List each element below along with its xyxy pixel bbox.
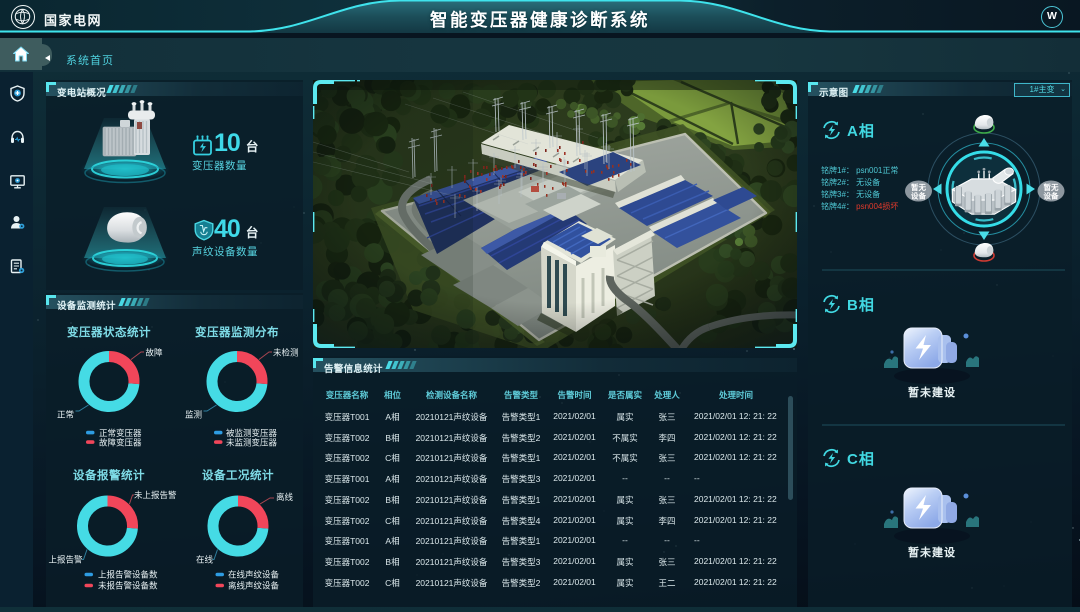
svg-text:B相: B相 [847,296,875,314]
svg-text:离线: 离线 [276,492,294,502]
svg-text:铭牌2#： 无设备: 铭牌2#： 无设备 [821,177,880,187]
svg-text:设备工况统计: 设备工况统计 [202,468,274,482]
svg-text:暂未建设: 暂未建设 [908,545,956,559]
svg-text:暂无: 暂无 [1044,182,1060,192]
svg-text:设备: 设备 [1044,191,1060,201]
svg-text:变压器监测分布: 变压器监测分布 [195,325,279,339]
svg-text:铭牌1#： psn001正常: 铭牌1#： psn001正常 [821,165,898,175]
svg-text:上报告警: 上报告警 [48,555,83,565]
svg-text:C相: C相 [847,450,875,468]
svg-text:故障变压器: 故障变压器 [99,437,142,447]
svg-text:被监测变压器: 被监测变压器 [226,428,278,438]
svg-text:故障: 故障 [146,348,164,358]
svg-text:未监测变压器: 未监测变压器 [226,437,278,447]
svg-text:A相: A相 [847,122,875,140]
svg-text:未报告警设备数: 未报告警设备数 [98,581,158,591]
svg-text:在线声纹设备: 在线声纹设备 [228,570,280,580]
svg-text:暂未建设: 暂未建设 [908,385,956,399]
svg-text:变压器状态统计: 变压器状态统计 [67,325,151,339]
svg-text:离线声纹设备: 离线声纹设备 [228,581,280,591]
svg-text:铭牌3#： 无设备: 铭牌3#： 无设备 [821,189,880,199]
svg-text:暂无: 暂无 [911,182,926,192]
svg-text:设备: 设备 [911,191,926,201]
svg-text:未检测: 未检测 [273,348,299,358]
svg-text:正常变压器: 正常变压器 [99,428,142,438]
svg-text:正常: 正常 [57,410,74,420]
svg-text:设备报警统计: 设备报警统计 [73,468,145,482]
svg-text:在线: 在线 [196,555,214,565]
svg-text:铭牌4#： psn004损坏: 铭牌4#： psn004损坏 [821,201,898,211]
svg-text:上报告警设备数: 上报告警设备数 [98,570,158,580]
svg-text:未上报告警: 未上报告警 [134,490,177,500]
svg-text:监测: 监测 [185,410,202,420]
